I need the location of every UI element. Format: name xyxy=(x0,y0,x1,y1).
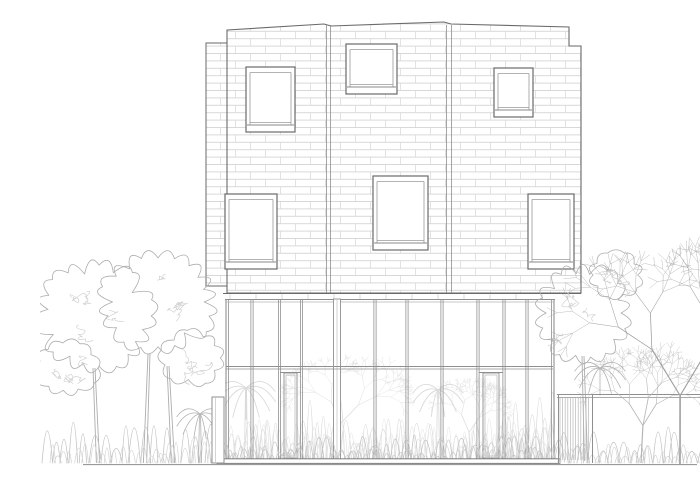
interior-plants xyxy=(217,353,560,458)
ground-floor-glazing xyxy=(226,299,554,459)
architectural-elevation-figure xyxy=(40,16,700,484)
window-mid-left xyxy=(225,194,277,269)
glass-door-2 xyxy=(479,373,503,459)
floor-band xyxy=(223,294,581,300)
pier-column xyxy=(334,299,341,459)
window-mid-center xyxy=(373,176,428,250)
window-frame xyxy=(225,194,277,269)
window-upper-right xyxy=(494,68,533,117)
window-frame xyxy=(528,194,574,269)
window-upper-left xyxy=(246,67,295,132)
left-wing xyxy=(206,43,227,286)
window-frame xyxy=(373,176,428,250)
left-garden-wall xyxy=(212,397,224,463)
left-trees xyxy=(40,251,224,463)
window-mid-right xyxy=(528,194,574,269)
window-upper-middle xyxy=(346,44,397,94)
elevation-drawing xyxy=(40,16,700,484)
base-slab xyxy=(217,459,560,464)
